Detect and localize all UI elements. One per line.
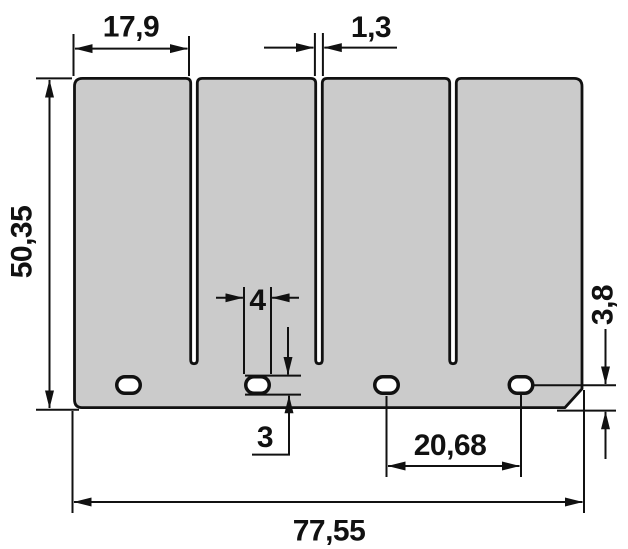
dim-label-slot-width: 1,3 (351, 11, 391, 44)
dim-label-hole-pitch: 20,68 (414, 429, 487, 462)
mounting-hole-2 (246, 377, 270, 394)
mounting-hole-4 (509, 377, 533, 394)
mounting-hole-1 (117, 377, 141, 394)
dim-plate-width: 77,55 (73, 390, 585, 548)
mounting-hole-3 (375, 377, 399, 394)
dim-label-plate-height: 50,35 (6, 206, 39, 279)
plate-outline (75, 78, 583, 407)
dim-finger-width: 17,9 (74, 11, 190, 77)
dim-label-hole-width: 4 (249, 284, 266, 317)
dim-label-hole-height: 3 (257, 421, 273, 454)
technical-drawing-canvas: 17,9 1,3 50,35 4 3 20,68 (0, 0, 628, 549)
dim-label-finger-width: 17,9 (103, 11, 159, 44)
dim-label-hole-edge-offset: 3,8 (587, 285, 620, 325)
dim-slot-width: 1,3 (264, 11, 397, 76)
dim-label-plate-width: 77,55 (293, 515, 366, 548)
technical-drawing-page: 17,9 1,3 50,35 4 3 20,68 (0, 0, 628, 549)
dim-plate-height: 50,35 (6, 78, 80, 409)
